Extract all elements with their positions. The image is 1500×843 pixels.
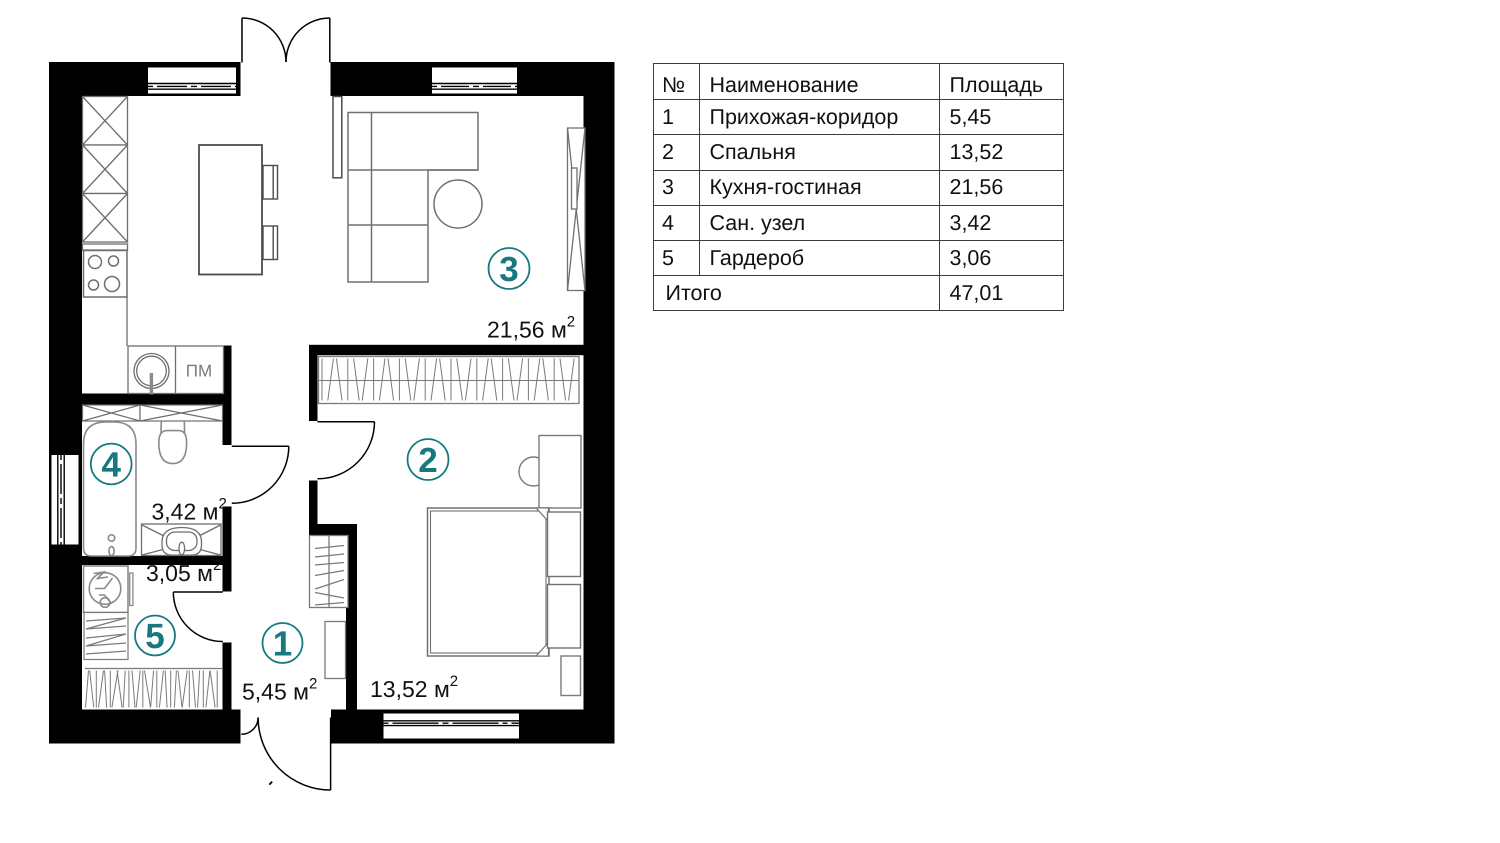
svg-text:2: 2 [418,441,437,480]
svg-text:21,56 м2: 21,56 м2 [487,314,575,343]
svg-text:3: 3 [499,250,518,289]
svg-text:5,45 м2: 5,45 м2 [242,676,317,705]
svg-text:1: 1 [273,625,292,664]
svg-text:3,05 м2: 3,05 м2 [146,557,221,586]
svg-text:5: 5 [145,617,164,656]
svg-text:13,52 м2: 13,52 м2 [370,673,458,702]
svg-text:ПМ: ПМ [186,362,212,381]
svg-text:4: 4 [101,446,121,485]
svg-text:3,42 м2: 3,42 м2 [152,496,227,525]
